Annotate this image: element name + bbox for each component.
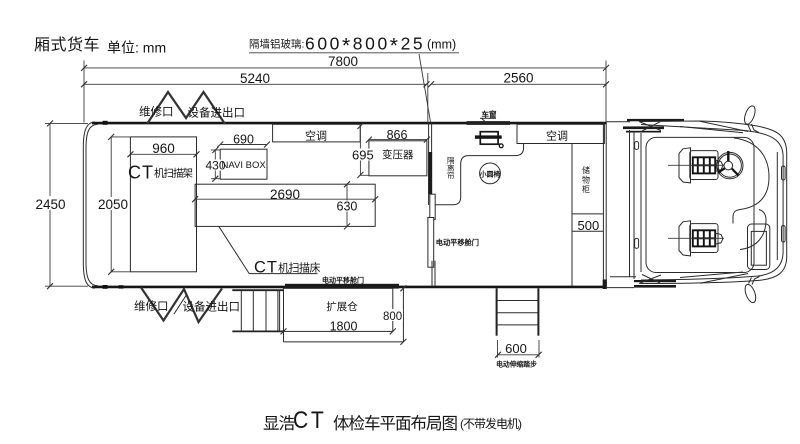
svg-text:机扫描床: 机扫描床 bbox=[278, 261, 320, 275]
svg-text:(mm): (mm) bbox=[427, 38, 456, 52]
svg-text:695: 695 bbox=[352, 147, 374, 162]
svg-text:储: 储 bbox=[582, 165, 590, 175]
svg-text:800: 800 bbox=[383, 311, 402, 323]
svg-text:CT: CT bbox=[128, 163, 154, 183]
svg-text:2560: 2560 bbox=[503, 70, 533, 85]
svg-text:扩展仓: 扩展仓 bbox=[326, 300, 358, 313]
svg-text:690: 690 bbox=[233, 133, 254, 147]
svg-text:设备进出口: 设备进出口 bbox=[183, 300, 241, 314]
svg-text:600: 600 bbox=[505, 341, 527, 356]
svg-text:小圆椅: 小圆椅 bbox=[479, 169, 501, 178]
svg-text:960: 960 bbox=[152, 141, 175, 156]
svg-text:车窗: 车窗 bbox=[482, 109, 497, 119]
svg-text:(不带发电机): (不带发电机) bbox=[460, 416, 522, 431]
svg-text:电动伸缩踏步: 电动伸缩踏步 bbox=[496, 360, 537, 369]
svg-text:设备进出口: 设备进出口 bbox=[188, 106, 246, 120]
svg-text:CT: CT bbox=[254, 259, 278, 277]
svg-text:厢式货车: 厢式货车 bbox=[34, 36, 100, 54]
svg-text:电动平移舱门: 电动平移舱门 bbox=[322, 276, 364, 285]
svg-text:空调: 空调 bbox=[305, 129, 327, 143]
svg-text:600*800*25: 600*800*25 bbox=[305, 34, 425, 58]
svg-text:帘: 帘 bbox=[447, 170, 455, 180]
svg-text:电动平移舱门: 电动平移舱门 bbox=[436, 238, 479, 247]
svg-text:5240: 5240 bbox=[240, 71, 270, 86]
svg-text:维修口: 维修口 bbox=[134, 299, 169, 313]
svg-text:显浩: 显浩 bbox=[263, 414, 295, 433]
svg-text:1800: 1800 bbox=[330, 319, 358, 333]
svg-text:866: 866 bbox=[387, 128, 408, 142]
svg-text:2050: 2050 bbox=[98, 197, 128, 212]
svg-text:隔墙铝玻璃:: 隔墙铝玻璃: bbox=[249, 38, 304, 51]
svg-text:2690: 2690 bbox=[270, 187, 300, 202]
svg-text:空调: 空调 bbox=[546, 129, 568, 143]
svg-text:体检车平面布局图: 体检车平面布局图 bbox=[333, 414, 458, 433]
svg-text:500: 500 bbox=[578, 218, 600, 233]
svg-text:7800: 7800 bbox=[328, 54, 358, 69]
svg-text:NAVI BOX: NAVI BOX bbox=[222, 160, 267, 171]
svg-text:单位: mm: 单位: mm bbox=[107, 40, 166, 56]
svg-text:CT: CT bbox=[293, 407, 326, 434]
svg-text:机扫描架: 机扫描架 bbox=[154, 167, 193, 180]
svg-text:物: 物 bbox=[582, 175, 590, 185]
svg-text:维修口: 维修口 bbox=[139, 105, 174, 119]
svg-text:630: 630 bbox=[337, 200, 358, 214]
svg-text:变压器: 变压器 bbox=[382, 148, 414, 161]
svg-text:柜: 柜 bbox=[582, 184, 590, 194]
svg-text:2450: 2450 bbox=[36, 197, 66, 212]
